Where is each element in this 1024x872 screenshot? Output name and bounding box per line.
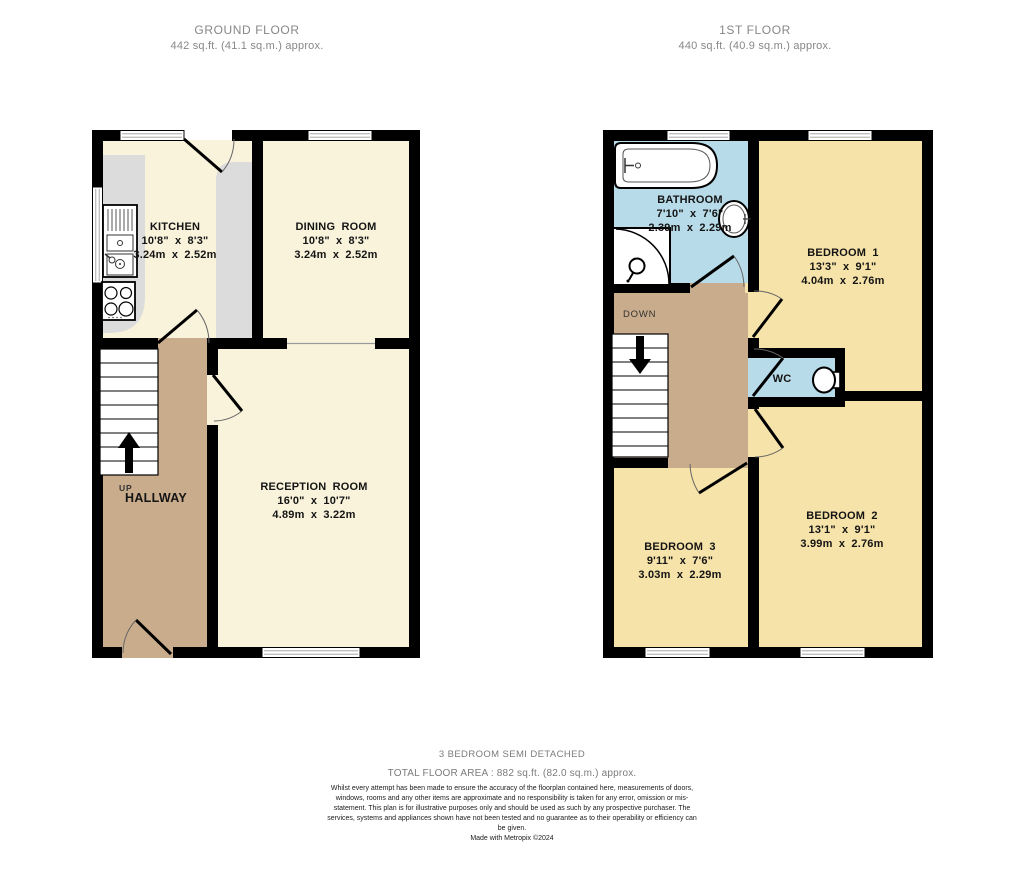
room-imperial: 13'3" x 9'1"	[768, 260, 918, 274]
shower-head	[630, 259, 645, 274]
bedroom2-label: BEDROOM 2 13'1" x 9'1" 3.99m x 2.76m	[767, 509, 917, 551]
bathtub	[615, 143, 717, 188]
room-name: RECEPTION ROOM	[239, 480, 389, 494]
reception-room-label: RECEPTION ROOM 16'0" x 10'7" 4.89m x 3.2…	[239, 480, 389, 522]
property-type: 3 BEDROOM SEMI DETACHED	[262, 749, 762, 760]
kitchen-top-window	[120, 131, 184, 141]
bathroom-label: BATHROOM 7'10" x 7'6" 2.39m x 2.29m	[615, 193, 765, 235]
first-floor-title: 1ST FLOOR	[590, 23, 920, 37]
bedroom1-label: BEDROOM 1 13'3" x 9'1" 4.04m x 2.76m	[768, 246, 918, 288]
room-metric: 3.24m x 2.52m	[100, 248, 250, 262]
ground-floor-area: 442 sq.ft. (41.1 sq.m.) approx.	[82, 40, 412, 52]
ground-floor-drawing	[92, 130, 420, 658]
dining-room-label: DINING ROOM 10'8" x 8'3" 3.24m x 2.52m	[261, 220, 411, 262]
kitchen-label: KITCHEN 10'8" x 8'3" 3.24m x 2.52m	[100, 220, 250, 262]
hob	[102, 282, 135, 320]
room-name: BEDROOM 1	[768, 246, 918, 260]
room-imperial: 10'8" x 8'3"	[261, 234, 411, 248]
reception-window	[262, 648, 360, 658]
room-imperial: 13'1" x 9'1"	[767, 523, 917, 537]
ground-floor-plan: KITCHEN 10'8" x 8'3" 3.24m x 2.52m DININ…	[92, 130, 420, 658]
wc-label: WC	[769, 372, 795, 386]
hallway-label: HALLWAY	[125, 491, 187, 505]
ground-floor-header: GROUND FLOOR 442 sq.ft. (41.1 sq.m.) app…	[82, 23, 412, 52]
room-metric: 4.89m x 3.22m	[239, 508, 389, 522]
landing-doorway	[668, 458, 748, 468]
bedroom2-window	[800, 648, 865, 658]
room-name: BEDROOM 2	[767, 509, 917, 523]
room-metric: 2.39m x 2.29m	[615, 221, 765, 235]
down-arrow-stem	[636, 336, 644, 361]
first-floor-area: 440 sq.ft. (40.9 sq.m.) approx.	[590, 40, 920, 52]
dining-window	[308, 131, 372, 141]
room-name: BATHROOM	[615, 193, 765, 207]
toilet-bowl	[813, 368, 835, 393]
room-name: WC	[769, 372, 795, 386]
stairs-up	[100, 349, 158, 475]
stairs-down	[612, 334, 668, 457]
bathroom-window	[667, 131, 730, 141]
disclaimer: Whilst every attempt has been made to en…	[326, 784, 698, 834]
floorplan-page: GROUND FLOOR 442 sq.ft. (41.1 sq.m.) app…	[0, 0, 1024, 872]
bedroom3-window	[645, 648, 710, 658]
credit-line: Made with Metropix ©2024	[262, 834, 762, 844]
room-imperial: 9'11" x 7'6"	[605, 554, 755, 568]
bathroom-doorway	[690, 283, 745, 293]
total-floor-area: TOTAL FLOOR AREA : 882 sq.ft. (82.0 sq.m…	[262, 768, 762, 779]
room-imperial: 7'10" x 7'6"	[615, 207, 765, 221]
down-label: DOWN	[623, 309, 656, 320]
first-floor-plan: BATHROOM 7'10" x 7'6" 2.39m x 2.29m BEDR…	[603, 130, 933, 658]
up-arrow-stem	[125, 446, 133, 473]
room-metric: 3.99m x 2.76m	[767, 537, 917, 551]
room-imperial: 16'0" x 10'7"	[239, 494, 389, 508]
room-imperial: 10'8" x 8'3"	[100, 234, 250, 248]
room-metric: 3.03m x 2.29m	[605, 568, 755, 582]
room-name: KITCHEN	[100, 220, 250, 234]
room-metric: 3.24m x 2.52m	[261, 248, 411, 262]
shower	[613, 228, 670, 285]
ground-floor-title: GROUND FLOOR	[82, 23, 412, 37]
bedroom1-window	[808, 131, 872, 141]
room-metric: 4.04m x 2.76m	[768, 274, 918, 288]
bedroom3-label: BEDROOM 3 9'11" x 7'6" 3.03m x 2.29m	[605, 540, 755, 582]
room-name: DINING ROOM	[261, 220, 411, 234]
room-name: BEDROOM 3	[605, 540, 755, 554]
first-floor-header: 1ST FLOOR 440 sq.ft. (40.9 sq.m.) approx…	[590, 23, 920, 52]
toilet	[813, 368, 840, 393]
footer: 3 BEDROOM SEMI DETACHED TOTAL FLOOR AREA…	[262, 749, 762, 844]
